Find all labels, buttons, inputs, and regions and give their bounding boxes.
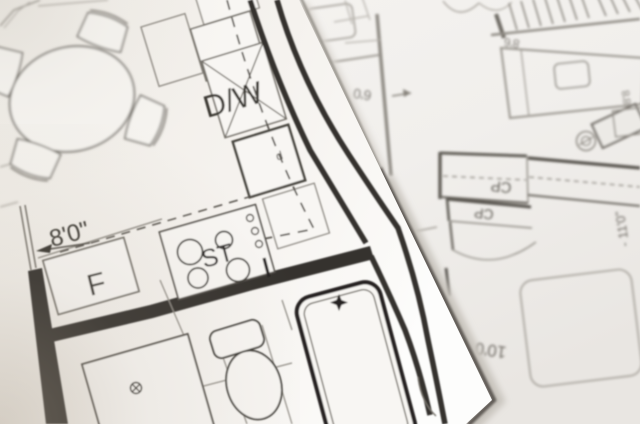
svg-text:CP: CP — [473, 205, 494, 223]
svg-text:CP: CP — [490, 177, 513, 196]
svg-text:8'8: 8'8 — [620, 89, 634, 105]
svg-text:6'0: 6'0 — [352, 85, 373, 103]
